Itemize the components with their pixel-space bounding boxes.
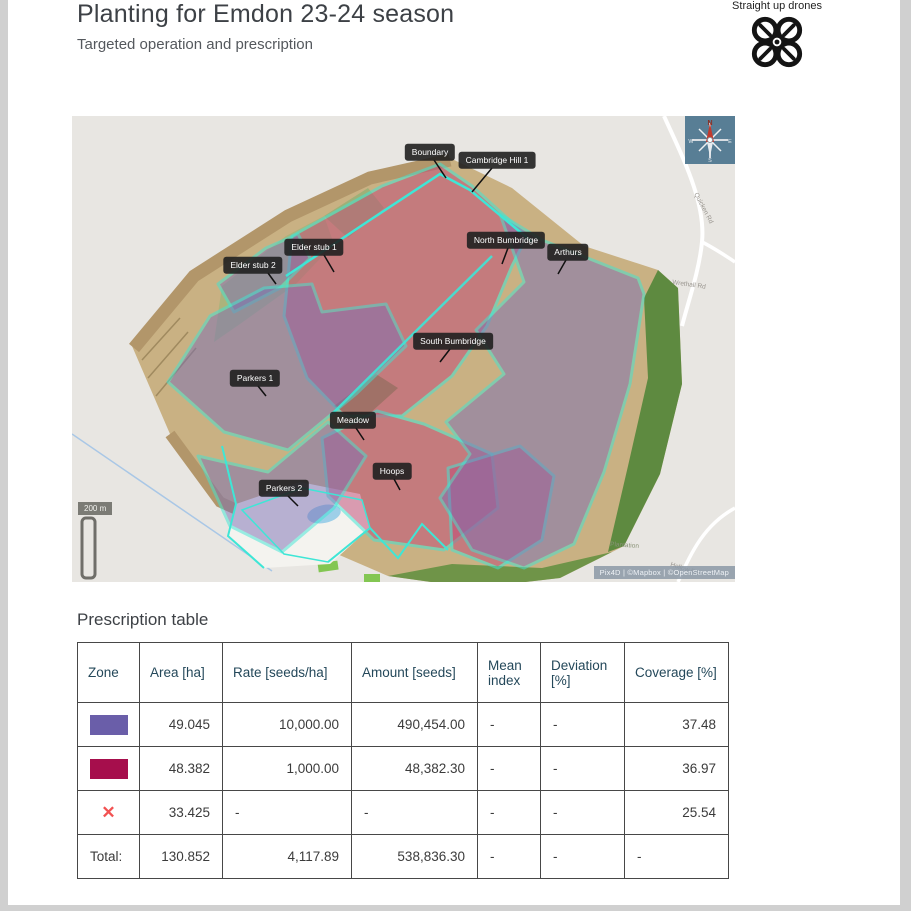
svg-text:W: W bbox=[688, 139, 694, 145]
svg-text:S: S bbox=[708, 158, 712, 164]
col-deviation: Deviation [%] bbox=[541, 643, 625, 703]
company-logo: Straight up drones bbox=[722, 0, 832, 74]
map-attribution[interactable]: Pix4D | ©Mapbox | ©OpenStreetMap bbox=[594, 566, 735, 579]
table-row: 49.045 10,000.00 490,454.00 - - 37.48 bbox=[78, 703, 729, 747]
field-map[interactable]: Quicken Rd Wrethall Rd Hollow Rd Plantat… bbox=[72, 116, 735, 582]
table-row: 48.382 1,000.00 48,382.30 - - 36.97 bbox=[78, 747, 729, 791]
col-zone: Zone bbox=[78, 643, 140, 703]
zone-label-parkers-2[interactable]: Parkers 2 bbox=[259, 480, 309, 497]
prescription-table: Zone Area [ha] Rate [seeds/ha] Amount [s… bbox=[77, 642, 729, 879]
col-area: Area [ha] bbox=[140, 643, 223, 703]
col-coverage: Coverage [%] bbox=[625, 643, 729, 703]
zone-label-elder-stub-1[interactable]: Elder stub 1 bbox=[284, 239, 343, 256]
zone-label-boundary[interactable]: Boundary bbox=[405, 144, 455, 161]
zone-label-arthurs[interactable]: Arthurs bbox=[547, 244, 588, 261]
scale-label: 200 m bbox=[78, 502, 112, 515]
excluded-zone-x-icon: ✕ bbox=[101, 803, 115, 822]
zone-label-hoops[interactable]: Hoops bbox=[373, 463, 412, 480]
zone-swatch-purple bbox=[90, 715, 128, 735]
svg-text:E: E bbox=[728, 139, 732, 145]
col-mean: Mean index bbox=[478, 643, 541, 703]
map-canvas: Quicken Rd Wrethall Rd Hollow Rd Plantat… bbox=[72, 116, 735, 582]
total-label: Total: bbox=[78, 835, 140, 879]
svg-text:N: N bbox=[707, 120, 712, 127]
table-heading: Prescription table bbox=[77, 610, 208, 630]
zone-swatch-crimson bbox=[90, 759, 128, 779]
col-amount: Amount [seeds] bbox=[352, 643, 478, 703]
zone-label-north-bumbridge[interactable]: North Bumbridge bbox=[467, 232, 545, 249]
zone-label-cambridge-hill[interactable]: Cambridge Hill 1 bbox=[459, 152, 536, 169]
zone-label-south-bumbridge[interactable]: South Bumbridge bbox=[413, 333, 493, 350]
compass-rose: N W E S bbox=[685, 116, 735, 164]
company-name: Straight up drones bbox=[722, 0, 832, 12]
zone-label-elder-stub-2[interactable]: Elder stub 2 bbox=[223, 257, 282, 274]
page-subtitle: Targeted operation and prescription bbox=[77, 36, 313, 53]
zone-label-parkers-1[interactable]: Parkers 1 bbox=[230, 370, 280, 387]
page-title: Planting for Emdon 23-24 season bbox=[77, 0, 454, 29]
zone-label-meadow[interactable]: Meadow bbox=[330, 412, 376, 429]
table-row: ✕ 33.425 - - - - 25.54 bbox=[78, 791, 729, 835]
scale-bar bbox=[82, 518, 95, 578]
table-total-row: Total: 130.852 4,117.89 538,836.30 - - - bbox=[78, 835, 729, 879]
drone-quadcopter-icon bbox=[750, 15, 804, 69]
col-rate: Rate [seeds/ha] bbox=[223, 643, 352, 703]
table-header-row: Zone Area [ha] Rate [seeds/ha] Amount [s… bbox=[78, 643, 729, 703]
